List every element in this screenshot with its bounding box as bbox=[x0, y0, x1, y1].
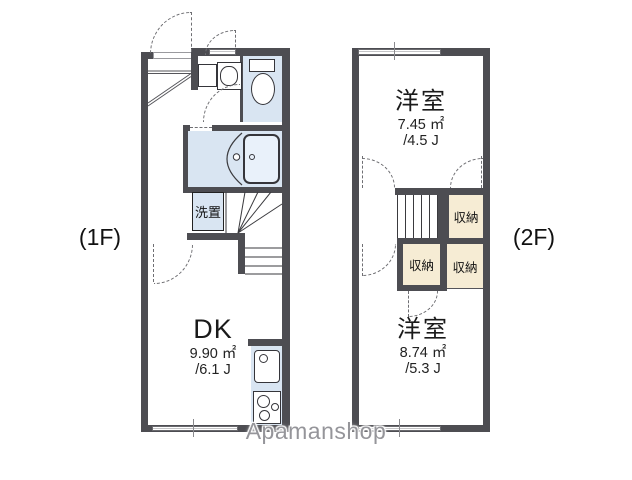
window-swing-leaf bbox=[235, 30, 236, 52]
closet-lower-left-label: 収納 bbox=[409, 255, 434, 274]
entrance-door-arc bbox=[150, 12, 191, 54]
entrance-door-leaf bbox=[191, 12, 192, 52]
stove-burner-1 bbox=[257, 395, 270, 408]
closet-upper-door-leaf bbox=[481, 156, 482, 188]
closet-lower-door-leaf bbox=[408, 291, 409, 317]
room-bottom-area-tatami: /5.3 J bbox=[361, 362, 485, 377]
window-top-tick bbox=[394, 42, 395, 60]
window-swing-arc bbox=[205, 30, 235, 55]
room-bottom-name: 洋室 bbox=[361, 318, 485, 342]
room-bottom-door-leaf bbox=[362, 244, 363, 276]
room-bottom-area-m2: 8.74 ㎡ bbox=[361, 346, 485, 361]
dk-room-area-tatami: /6.1 J bbox=[151, 363, 275, 378]
closet-upper-door-arc bbox=[450, 158, 483, 188]
room-top-label: 洋室 7.45 ㎡ /4.5 J bbox=[359, 90, 483, 148]
wall-closet-ll-left bbox=[397, 244, 403, 291]
closet-lower-right: 収納 bbox=[447, 244, 483, 289]
wall-stair-closet bbox=[438, 188, 449, 244]
watermark: Apamanshop bbox=[0, 418, 632, 445]
wall-closet-ll-right bbox=[440, 244, 447, 291]
window-top bbox=[358, 49, 441, 55]
room-top-area-m2: 7.45 ㎡ bbox=[359, 118, 483, 133]
wall-left bbox=[352, 48, 359, 432]
floor-plan-2f: 収納 収納 収納 洋室 7.45 ㎡ /4.5 J 洋室 8.74 ㎡ /5.3… bbox=[352, 48, 490, 432]
closet-upper-label: 収納 bbox=[453, 207, 478, 226]
room-top-area-tatami: /4.5 J bbox=[359, 134, 483, 149]
dk-room-area-m2: 9.90 ㎡ bbox=[151, 347, 275, 362]
room-bottom-door-arc bbox=[362, 244, 396, 276]
dk-room-label: DK 9.90 ㎡ /6.1 J bbox=[151, 316, 275, 377]
closet-lower-door-arc bbox=[408, 291, 438, 317]
closet-lower-left: 収納 bbox=[403, 244, 440, 285]
room-top-name: 洋室 bbox=[359, 90, 483, 114]
dk-room-name: DK bbox=[151, 316, 275, 343]
floor-2f-tag: (2F) bbox=[502, 224, 566, 251]
dk-door-leaf bbox=[153, 244, 154, 282]
room-top-door-leaf bbox=[362, 156, 363, 188]
room-bottom-label: 洋室 8.74 ㎡ /5.3 J bbox=[361, 318, 485, 376]
closet-lower-right-label: 収納 bbox=[452, 257, 477, 276]
stairs-2f bbox=[397, 195, 438, 238]
room-top-door-arc bbox=[362, 158, 395, 188]
floor-1f-tag: (1F) bbox=[68, 224, 132, 251]
closet-upper: 収納 bbox=[449, 195, 483, 238]
floor-plan-1f: 洗置 bbox=[141, 48, 290, 432]
stove-burner-3 bbox=[271, 403, 279, 411]
